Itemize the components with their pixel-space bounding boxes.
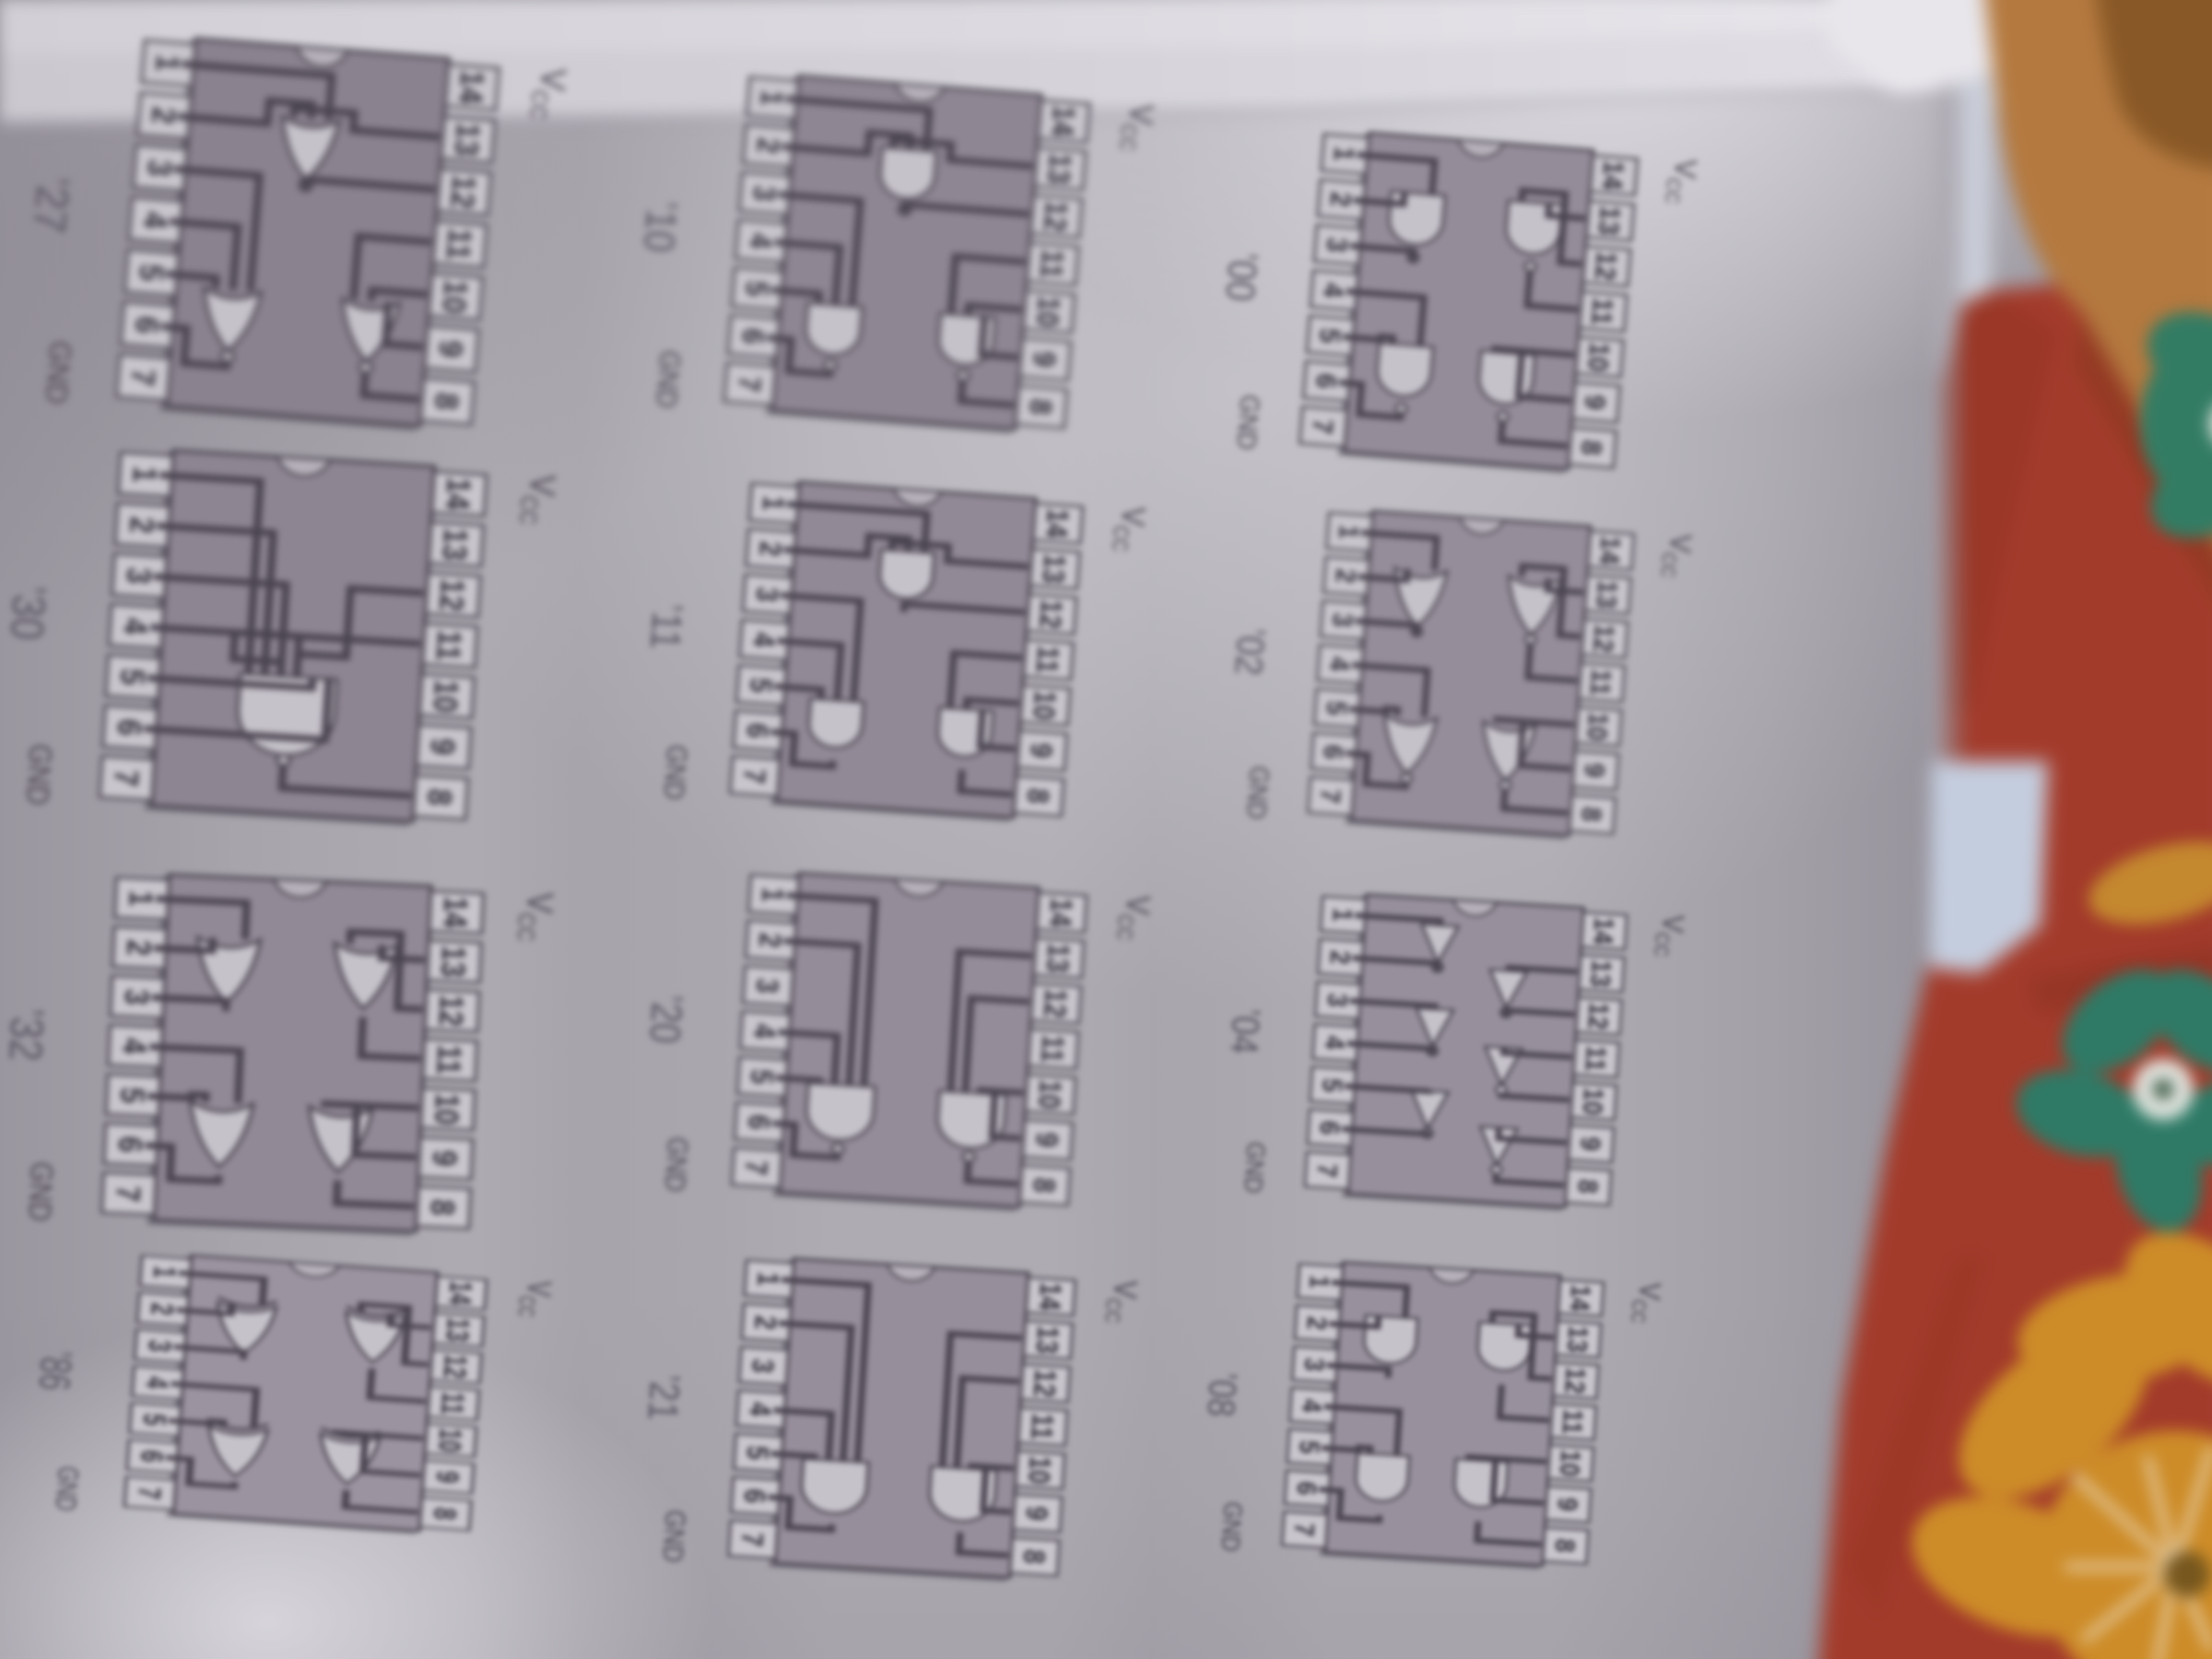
svg-text:13: 13 xyxy=(1041,152,1077,185)
svg-text:14: 14 xyxy=(1564,1284,1596,1312)
svg-text:7: 7 xyxy=(735,1532,769,1547)
svg-text:4: 4 xyxy=(1296,1398,1327,1414)
svg-text:GND: GND xyxy=(1231,394,1265,451)
svg-text:1: 1 xyxy=(125,465,163,484)
svg-text:5: 5 xyxy=(739,279,775,298)
svg-text:13: 13 xyxy=(1030,1324,1064,1354)
svg-text:13: 13 xyxy=(1040,942,1076,973)
svg-text:1: 1 xyxy=(754,89,790,108)
svg-text:10: 10 xyxy=(435,278,474,315)
svg-text:6: 6 xyxy=(1291,1481,1323,1496)
svg-text:10: 10 xyxy=(1581,712,1613,742)
svg-text:5: 5 xyxy=(113,667,151,686)
svg-text:1: 1 xyxy=(148,53,185,73)
svg-text:6: 6 xyxy=(737,1488,771,1504)
svg-text:13: 13 xyxy=(1583,959,1616,988)
svg-text:11: 11 xyxy=(1557,1408,1589,1435)
svg-text:6: 6 xyxy=(128,315,165,335)
svg-text:10: 10 xyxy=(431,1427,467,1453)
svg-text:3: 3 xyxy=(1299,1357,1330,1371)
svg-text:11: 11 xyxy=(1033,248,1070,280)
svg-text:3: 3 xyxy=(1321,993,1353,1008)
svg-text:8: 8 xyxy=(1575,806,1606,823)
svg-text:6: 6 xyxy=(740,723,775,739)
svg-text:3: 3 xyxy=(1320,236,1352,253)
svg-text:10: 10 xyxy=(1554,1449,1586,1477)
svg-text:9: 9 xyxy=(423,737,461,756)
svg-text:2: 2 xyxy=(748,1314,782,1330)
svg-text:7: 7 xyxy=(1311,1162,1343,1178)
svg-text:4: 4 xyxy=(1324,656,1355,673)
svg-text:9: 9 xyxy=(1579,394,1611,411)
svg-text:4: 4 xyxy=(116,617,154,635)
svg-text:9: 9 xyxy=(1030,1132,1065,1148)
svg-text:13: 13 xyxy=(1036,553,1072,584)
svg-text:1: 1 xyxy=(1326,907,1359,923)
svg-text:’30: ’30 xyxy=(0,583,55,641)
svg-text:8: 8 xyxy=(1023,398,1059,417)
svg-text:2: 2 xyxy=(1324,949,1356,965)
svg-text:3: 3 xyxy=(747,184,782,203)
svg-text:3: 3 xyxy=(117,988,154,1006)
svg-text:GND: GND xyxy=(49,1465,86,1512)
svg-text:2: 2 xyxy=(752,932,787,948)
svg-text:14: 14 xyxy=(1042,897,1078,929)
svg-text:7: 7 xyxy=(124,368,160,387)
svg-text:GND: GND xyxy=(22,1161,60,1222)
svg-text:2: 2 xyxy=(123,516,160,535)
svg-text:1: 1 xyxy=(1333,524,1364,540)
svg-text:2: 2 xyxy=(119,939,156,957)
svg-text:1: 1 xyxy=(122,889,159,907)
svg-text:10: 10 xyxy=(1027,689,1063,721)
svg-text:2: 2 xyxy=(753,540,788,557)
svg-text:1: 1 xyxy=(147,1265,182,1279)
svg-text:4: 4 xyxy=(747,1023,782,1041)
svg-text:14: 14 xyxy=(438,477,477,512)
svg-text:4: 4 xyxy=(1317,282,1349,300)
svg-text:5: 5 xyxy=(1316,1077,1348,1093)
svg-text:2: 2 xyxy=(1301,1315,1333,1330)
svg-text:6: 6 xyxy=(111,1135,147,1153)
svg-text:13: 13 xyxy=(1592,205,1626,236)
svg-text:12: 12 xyxy=(1582,1001,1614,1030)
svg-text:9: 9 xyxy=(429,1470,464,1484)
svg-text:’27: ’27 xyxy=(23,174,77,234)
svg-text:12: 12 xyxy=(1037,988,1073,1019)
svg-text:5: 5 xyxy=(112,1087,149,1104)
svg-text:2: 2 xyxy=(1324,191,1356,208)
svg-text:9: 9 xyxy=(1027,350,1063,369)
svg-text:9: 9 xyxy=(1574,1136,1606,1152)
svg-text:13: 13 xyxy=(1561,1325,1594,1354)
svg-text:14: 14 xyxy=(452,69,490,106)
svg-text:14: 14 xyxy=(1032,1281,1066,1312)
svg-text:8: 8 xyxy=(423,1199,460,1217)
svg-text:8: 8 xyxy=(1020,787,1055,804)
svg-text:’04: ’04 xyxy=(1222,1007,1267,1056)
svg-text:8: 8 xyxy=(426,1507,461,1521)
svg-text:14: 14 xyxy=(1586,916,1618,946)
svg-text:GND: GND xyxy=(39,339,77,406)
svg-text:14: 14 xyxy=(441,1280,477,1307)
svg-text:’86: ’86 xyxy=(29,1349,82,1393)
svg-text:6: 6 xyxy=(1313,1120,1346,1135)
svg-text:3: 3 xyxy=(119,567,157,585)
svg-text:’11: ’11 xyxy=(641,602,690,652)
svg-text:1: 1 xyxy=(1304,1275,1335,1289)
svg-text:5: 5 xyxy=(136,1412,171,1426)
svg-text:6: 6 xyxy=(1317,744,1348,760)
svg-text:7: 7 xyxy=(736,768,771,784)
svg-text:4: 4 xyxy=(743,1401,777,1418)
svg-text:6: 6 xyxy=(741,1114,776,1131)
svg-text:10: 10 xyxy=(1031,1078,1067,1110)
svg-text:12: 12 xyxy=(1027,1368,1061,1397)
svg-text:14: 14 xyxy=(1044,104,1081,138)
svg-text:11: 11 xyxy=(429,1044,467,1076)
svg-text:14: 14 xyxy=(1595,159,1630,192)
svg-text:14: 14 xyxy=(1594,535,1626,565)
svg-text:10: 10 xyxy=(1582,341,1616,372)
svg-text:3: 3 xyxy=(749,977,784,994)
svg-text:13: 13 xyxy=(435,527,474,562)
svg-text:8: 8 xyxy=(1017,1548,1051,1564)
svg-text:7: 7 xyxy=(1306,418,1338,436)
svg-text:3: 3 xyxy=(749,586,784,603)
svg-text:GND: GND xyxy=(658,1135,693,1193)
svg-text:8: 8 xyxy=(1571,1179,1604,1194)
svg-text:6: 6 xyxy=(1310,372,1342,390)
svg-text:4: 4 xyxy=(743,232,779,251)
svg-text:13: 13 xyxy=(1590,579,1622,609)
svg-text:9: 9 xyxy=(425,1149,462,1167)
svg-text:2: 2 xyxy=(144,1302,179,1316)
svg-text:10: 10 xyxy=(1021,1455,1055,1485)
svg-text:5: 5 xyxy=(1313,327,1346,345)
svg-text:6: 6 xyxy=(134,1449,169,1463)
svg-text:’10: ’10 xyxy=(634,199,686,254)
svg-text:11: 11 xyxy=(1024,1412,1058,1441)
svg-text:14: 14 xyxy=(436,896,474,929)
svg-text:12: 12 xyxy=(1587,623,1619,653)
svg-text:5: 5 xyxy=(132,263,169,282)
svg-text:1: 1 xyxy=(1327,146,1359,163)
svg-text:12: 12 xyxy=(1559,1366,1591,1394)
svg-text:5: 5 xyxy=(744,1068,779,1085)
svg-text:3: 3 xyxy=(1326,612,1358,629)
svg-text:7: 7 xyxy=(1288,1522,1320,1536)
svg-text:7: 7 xyxy=(131,1486,166,1500)
svg-text:GND: GND xyxy=(1216,1500,1248,1552)
svg-text:9: 9 xyxy=(1578,762,1609,779)
svg-text:7: 7 xyxy=(109,1185,146,1203)
svg-text:2: 2 xyxy=(145,106,182,125)
svg-text:9: 9 xyxy=(1552,1497,1583,1512)
svg-text:7: 7 xyxy=(738,1159,773,1176)
svg-text:8: 8 xyxy=(1575,439,1607,456)
svg-text:’20: ’20 xyxy=(640,993,689,1044)
svg-text:’02: ’02 xyxy=(1227,627,1273,677)
svg-text:12: 12 xyxy=(1037,200,1074,233)
svg-text:’21: ’21 xyxy=(639,1372,688,1422)
svg-text:1: 1 xyxy=(755,887,790,903)
svg-text:GND: GND xyxy=(20,743,59,806)
svg-text:3: 3 xyxy=(141,1338,176,1352)
svg-text:8: 8 xyxy=(420,788,458,806)
svg-text:’08: ’08 xyxy=(1199,1371,1244,1418)
svg-text:8: 8 xyxy=(428,392,465,411)
svg-text:3: 3 xyxy=(140,158,177,177)
svg-text:1: 1 xyxy=(756,495,791,512)
svg-text:7: 7 xyxy=(732,375,768,394)
svg-text:10: 10 xyxy=(427,1092,465,1125)
svg-text:11: 11 xyxy=(433,1391,469,1416)
svg-text:12: 12 xyxy=(1589,250,1623,281)
svg-text:11: 11 xyxy=(1034,1034,1070,1064)
svg-text:7: 7 xyxy=(1314,788,1346,805)
svg-text:13: 13 xyxy=(447,121,486,158)
svg-text:12: 12 xyxy=(443,173,482,210)
svg-text:9: 9 xyxy=(431,339,468,359)
svg-text:’32: ’32 xyxy=(0,1006,53,1062)
svg-text:4: 4 xyxy=(1318,1035,1350,1051)
svg-text:2: 2 xyxy=(750,136,786,155)
svg-text:10: 10 xyxy=(1030,295,1066,328)
svg-text:12: 12 xyxy=(431,994,469,1027)
svg-text:13: 13 xyxy=(433,945,471,978)
svg-text:3: 3 xyxy=(746,1358,780,1373)
svg-text:10: 10 xyxy=(426,678,465,713)
svg-text:11: 11 xyxy=(1584,668,1617,698)
svg-text:4: 4 xyxy=(136,210,173,229)
svg-text:4: 4 xyxy=(115,1038,152,1055)
svg-text:11: 11 xyxy=(1030,644,1065,675)
svg-text:8: 8 xyxy=(1027,1177,1062,1194)
svg-text:6: 6 xyxy=(735,327,771,346)
svg-text:14: 14 xyxy=(1039,508,1075,539)
svg-text:GND: GND xyxy=(657,1509,691,1563)
svg-text:11: 11 xyxy=(1579,1044,1611,1073)
svg-text:5: 5 xyxy=(1294,1440,1325,1454)
svg-text:4: 4 xyxy=(747,631,782,648)
svg-text:5: 5 xyxy=(743,677,778,693)
svg-text:11: 11 xyxy=(429,629,467,662)
svg-text:11: 11 xyxy=(440,227,478,262)
svg-text:8: 8 xyxy=(1549,1538,1581,1553)
svg-text:9: 9 xyxy=(1019,1505,1053,1521)
svg-text:GND: GND xyxy=(1241,765,1275,820)
svg-text:GND: GND xyxy=(1239,1141,1271,1194)
svg-text:5: 5 xyxy=(740,1444,774,1460)
svg-text:GND: GND xyxy=(657,744,692,801)
svg-text:7: 7 xyxy=(107,769,145,787)
svg-text:6: 6 xyxy=(110,718,147,736)
svg-text:9: 9 xyxy=(1024,742,1059,759)
svg-text:2: 2 xyxy=(1329,568,1360,584)
svg-text:13: 13 xyxy=(439,1317,475,1343)
svg-text:11: 11 xyxy=(1585,296,1619,326)
svg-text:12: 12 xyxy=(432,577,471,612)
svg-text:’00: ’00 xyxy=(1218,251,1266,303)
svg-text:5: 5 xyxy=(1320,700,1351,716)
svg-text:10: 10 xyxy=(1576,1087,1608,1116)
svg-text:GND: GND xyxy=(650,349,687,409)
svg-text:1: 1 xyxy=(751,1271,785,1287)
svg-text:12: 12 xyxy=(1033,598,1069,629)
svg-text:12: 12 xyxy=(436,1353,472,1379)
